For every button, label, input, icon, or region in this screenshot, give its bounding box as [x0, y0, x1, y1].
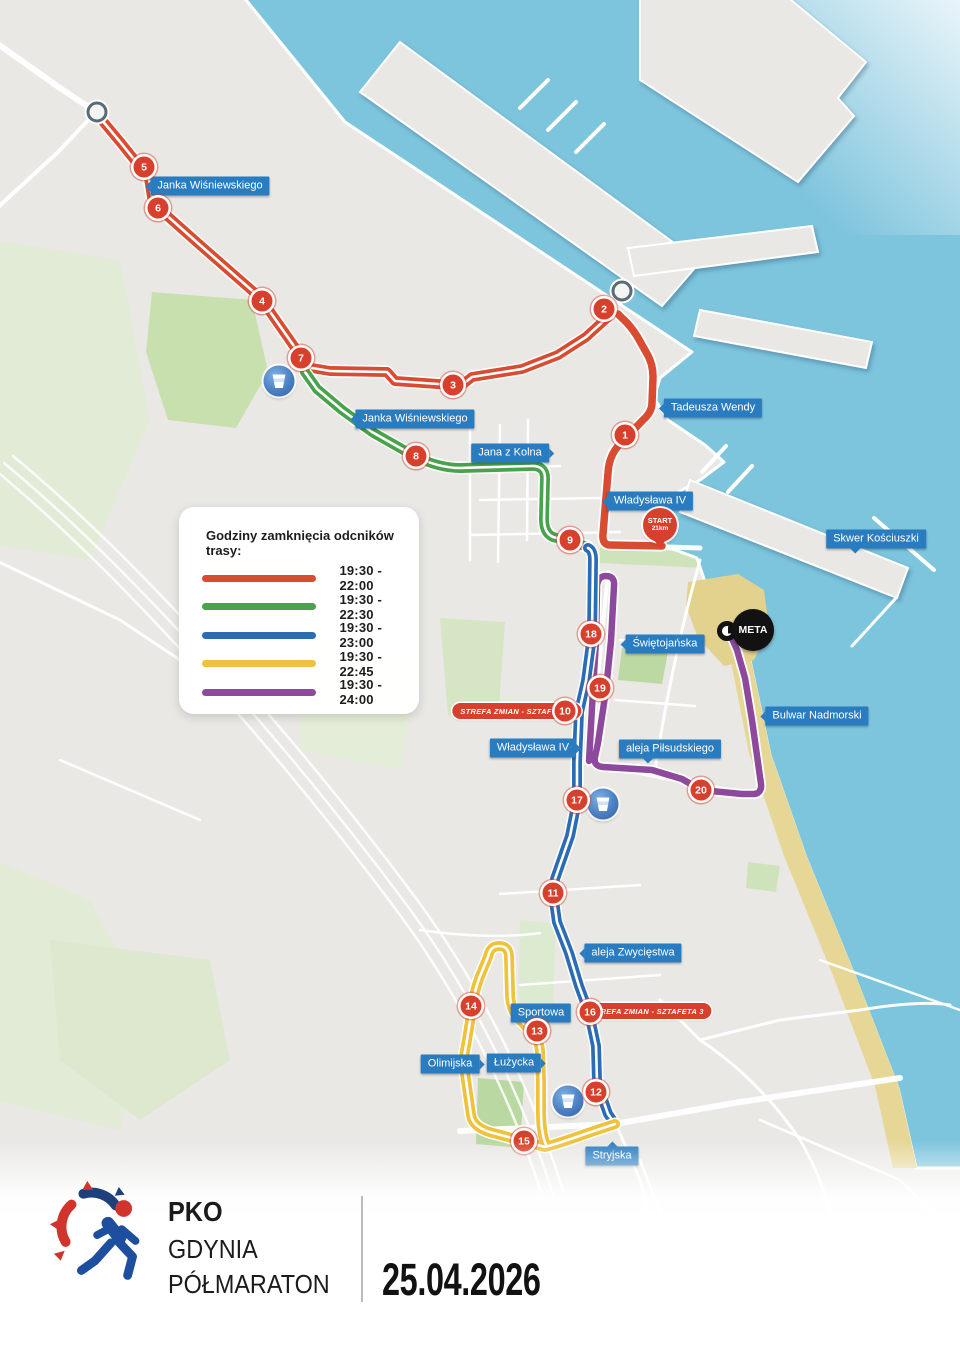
km-marker-19: 19: [590, 678, 611, 699]
km-marker-18: 18: [581, 624, 602, 645]
turnaround-point: [87, 102, 108, 123]
street-label: Łużycka: [487, 1054, 541, 1073]
legend-time: 19:30 - 22:45: [339, 649, 419, 679]
street-label: Władysława IV: [490, 739, 576, 758]
turnaround-point: [612, 281, 633, 302]
water-point-icon: [553, 1086, 584, 1117]
street-label: aleja Zwycięstwa: [584, 944, 681, 963]
km-marker-10: 10: [555, 701, 576, 722]
legend-color-bar: [202, 603, 316, 610]
km-marker-13: 13: [527, 1021, 548, 1042]
start-pin-tip: [653, 538, 667, 556]
street-label: aleja Piłsudskiego: [619, 740, 721, 759]
legend-row: 19:30 - 22:45: [202, 650, 419, 679]
km-marker-17: 17: [567, 790, 588, 811]
km-marker-14: 14: [461, 996, 482, 1017]
relay-zone-label: STREFA ZMIAN - SZTAFETA 3: [582, 1003, 711, 1019]
legend-time: 19:30 - 22:30: [339, 592, 419, 622]
event-title: PKO GDYNIA PÓŁMARATON: [168, 1192, 330, 1302]
event-race: PÓŁMARATON: [168, 1267, 330, 1302]
legend-row: 19:30 - 23:00: [202, 621, 419, 650]
water-point-icon: [264, 366, 295, 397]
street-label: Sportowa: [511, 1004, 571, 1023]
street-label: Janka Wiśniewskiego: [355, 410, 474, 429]
street-label: Jana z Kolna: [471, 444, 549, 463]
legend-color-bar: [202, 632, 316, 639]
street-label: Skwer Kościuszki: [826, 530, 926, 549]
legend-rows: 19:30 - 22:0019:30 - 22:3019:30 - 23:001…: [179, 564, 419, 707]
legend-time: 19:30 - 24:00: [339, 677, 419, 707]
street-label: Tadeusza Wendy: [664, 399, 762, 418]
race-map-poster: Janka WiśniewskiegoJanka WiśniewskiegoJa…: [0, 0, 960, 1350]
km-marker-9: 9: [560, 530, 581, 551]
street-label: Świętojańska: [626, 635, 705, 654]
km-marker-20: 20: [691, 780, 712, 801]
meta-marker: META: [732, 609, 774, 651]
event-city: GDYNIA: [168, 1232, 330, 1267]
street-label: Bulwar Nadmorski: [765, 707, 868, 726]
legend-color-bar: [202, 689, 316, 696]
legend-title: Godziny zamknięcia odcników trasy:: [206, 528, 419, 558]
street-label: Olimijska: [421, 1055, 480, 1074]
footer: PKO GDYNIA PÓŁMARATON 25.04.2026: [0, 1140, 960, 1350]
km-marker-16: 16: [580, 1002, 601, 1023]
legend-time: 19:30 - 23:00: [339, 620, 419, 650]
street-label: Janka Wiśniewskiego: [150, 177, 269, 196]
water-point-icon: [588, 789, 619, 820]
legend-time: 19:30 - 22:00: [339, 563, 419, 593]
start-bubble: START21km: [643, 508, 677, 542]
km-marker-12: 12: [586, 1082, 607, 1103]
legend-panel: Godziny zamknięcia odcników trasy: 19:30…: [179, 507, 419, 714]
km-marker-11: 11: [543, 883, 564, 904]
km-marker-4: 4: [252, 291, 273, 312]
legend-color-bar: [202, 660, 316, 667]
brand-name: PKO: [168, 1192, 330, 1232]
cup-icon: [273, 374, 286, 388]
km-marker-6: 6: [148, 198, 169, 219]
cup-icon: [562, 1094, 575, 1108]
km-marker-1: 1: [615, 425, 636, 446]
start-distance: 21km: [652, 525, 669, 533]
km-marker-8: 8: [406, 446, 427, 467]
event-date: 25.04.2026: [382, 1254, 541, 1306]
start-marker: START21km: [642, 508, 678, 548]
km-marker-2: 2: [594, 299, 615, 320]
legend-row: 19:30 - 22:30: [202, 593, 419, 622]
legend-row: 19:30 - 24:00: [202, 678, 419, 707]
km-marker-3: 3: [443, 375, 464, 396]
event-logo: [46, 1178, 164, 1298]
legend-color-bar: [202, 575, 316, 582]
km-marker-5: 5: [134, 157, 155, 178]
footer-divider: [361, 1196, 363, 1302]
km-marker-7: 7: [291, 348, 312, 369]
legend-row: 19:30 - 22:00: [202, 564, 419, 593]
cup-icon: [597, 797, 610, 811]
start-label: START: [648, 517, 672, 525]
